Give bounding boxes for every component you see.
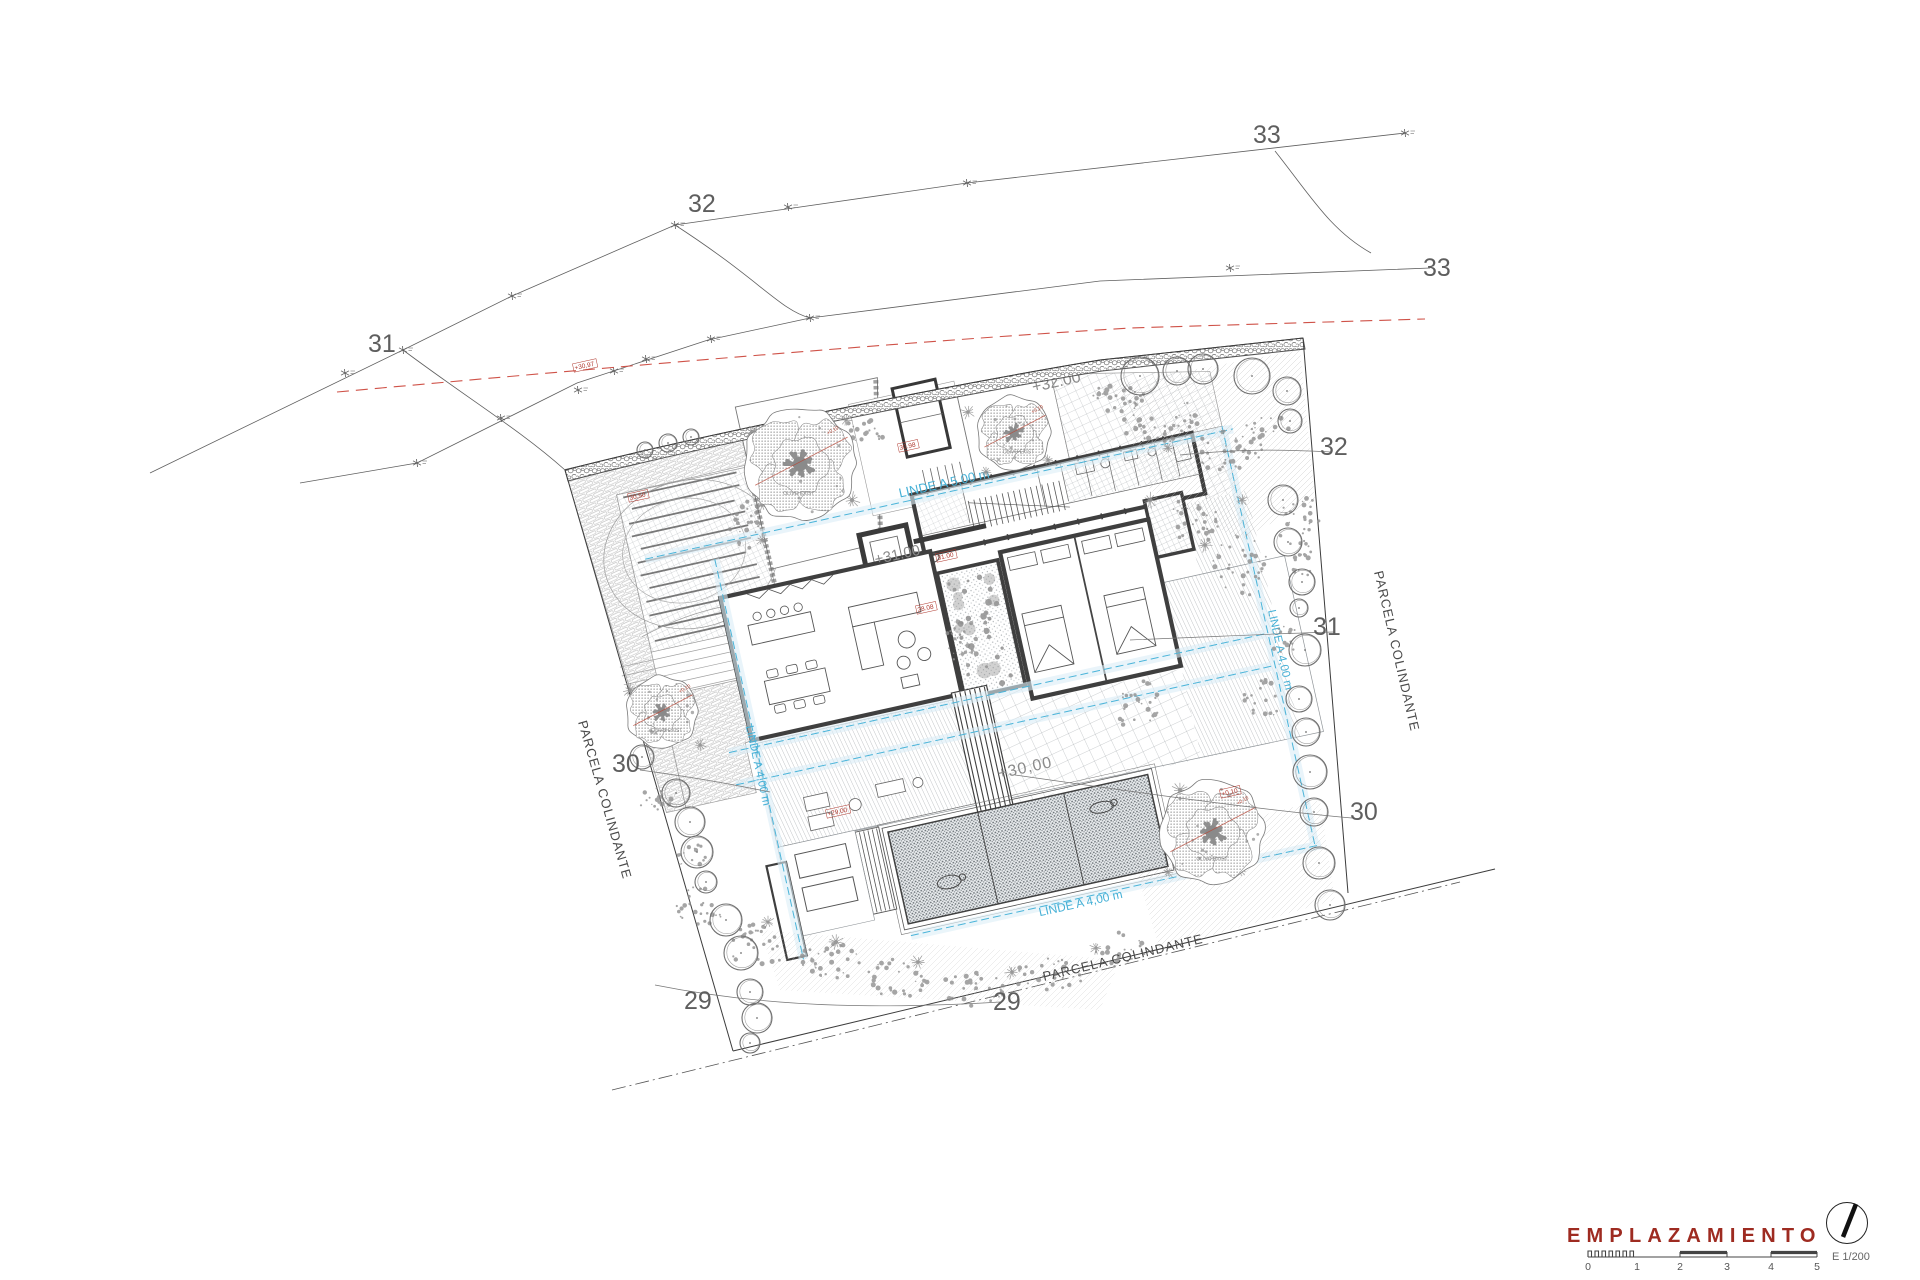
svg-text:33: 33 [1423, 254, 1451, 282]
svg-text:5: 5 [1814, 1261, 1820, 1273]
svg-text:31: 31 [1313, 613, 1341, 641]
svg-text:2: 2 [1677, 1261, 1683, 1273]
svg-text:EMPLAZAMIENTO: EMPLAZAMIENTO [1567, 1225, 1822, 1247]
svg-text:29: 29 [993, 988, 1021, 1016]
svg-text:29: 29 [684, 987, 712, 1015]
svg-text:30: 30 [1350, 798, 1378, 826]
svg-text:0: 0 [1585, 1261, 1591, 1273]
svg-text:32: 32 [1320, 433, 1348, 461]
svg-text:OLIVO EXIST: OLIVO EXIST [651, 728, 682, 734]
svg-text:1: 1 [1634, 1261, 1640, 1273]
svg-text:30: 30 [612, 750, 640, 778]
svg-text:31: 31 [368, 330, 396, 358]
svg-text:OLIVO EXIST: OLIVO EXIST [1003, 449, 1034, 455]
svg-text:E 1/200: E 1/200 [1832, 1251, 1870, 1263]
svg-text:32: 32 [688, 190, 716, 218]
svg-text:OLIVO EXIST: OLIVO EXIST [1196, 857, 1227, 863]
svg-text:33: 33 [1253, 121, 1281, 149]
svg-text:4: 4 [1768, 1261, 1774, 1273]
svg-text:3: 3 [1724, 1261, 1730, 1273]
svg-text:OLIVO EXIST: OLIVO EXIST [783, 491, 814, 497]
